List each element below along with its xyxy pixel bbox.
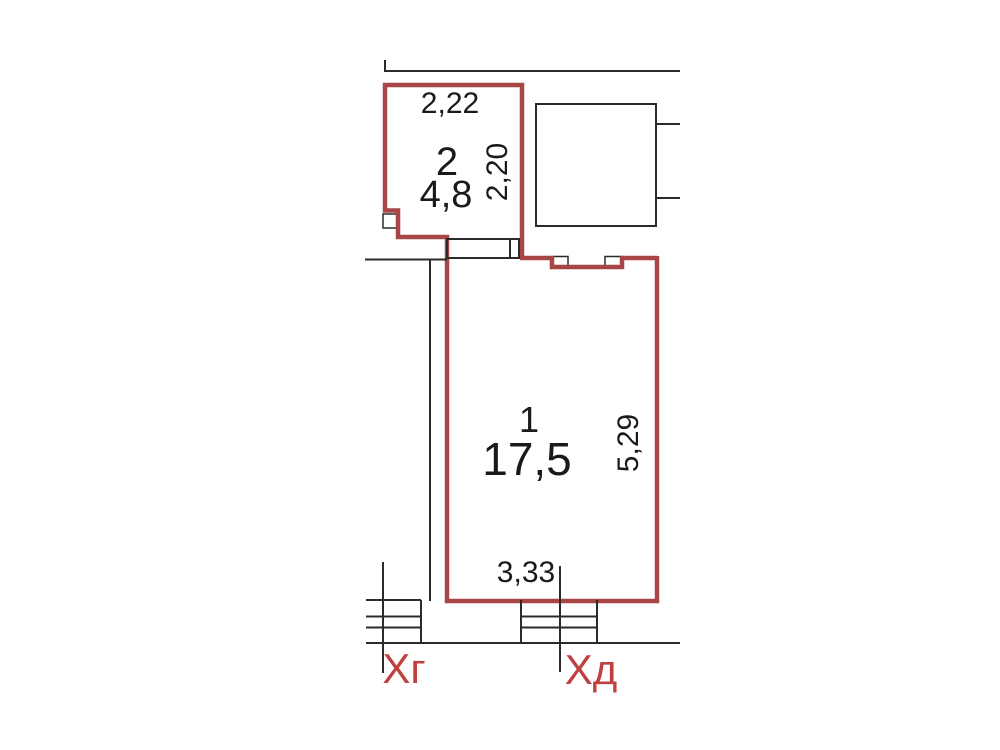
adjacent-room-wall-ticks [656, 124, 680, 198]
floor-plan-drawing: 2,22 2 4,8 2,20 1 17,5 5,29 3,33 Хг Хд [0, 0, 1000, 750]
room-1-depth-dimension: 5,29 [612, 414, 645, 472]
room-2-area: 4,8 [420, 174, 473, 216]
axis-label-xg: Хг [382, 645, 425, 692]
window-left [366, 600, 421, 643]
axis-label-xd: Хд [565, 646, 618, 693]
room-1-top-wall-recess [520, 258, 657, 267]
room-2-width-dimension: 2,22 [421, 87, 479, 120]
room-1-area: 17,5 [482, 433, 572, 485]
room-1-width-dimension: 3,33 [497, 556, 555, 589]
facade-line [385, 60, 680, 71]
door-opening [447, 239, 519, 258]
floor-plan-canvas: 2,22 2 4,8 2,20 1 17,5 5,29 3,33 Хг Хд [0, 0, 1000, 750]
adjacent-room-outline [536, 104, 656, 226]
room-2-depth-dimension: 2,20 [481, 143, 514, 201]
